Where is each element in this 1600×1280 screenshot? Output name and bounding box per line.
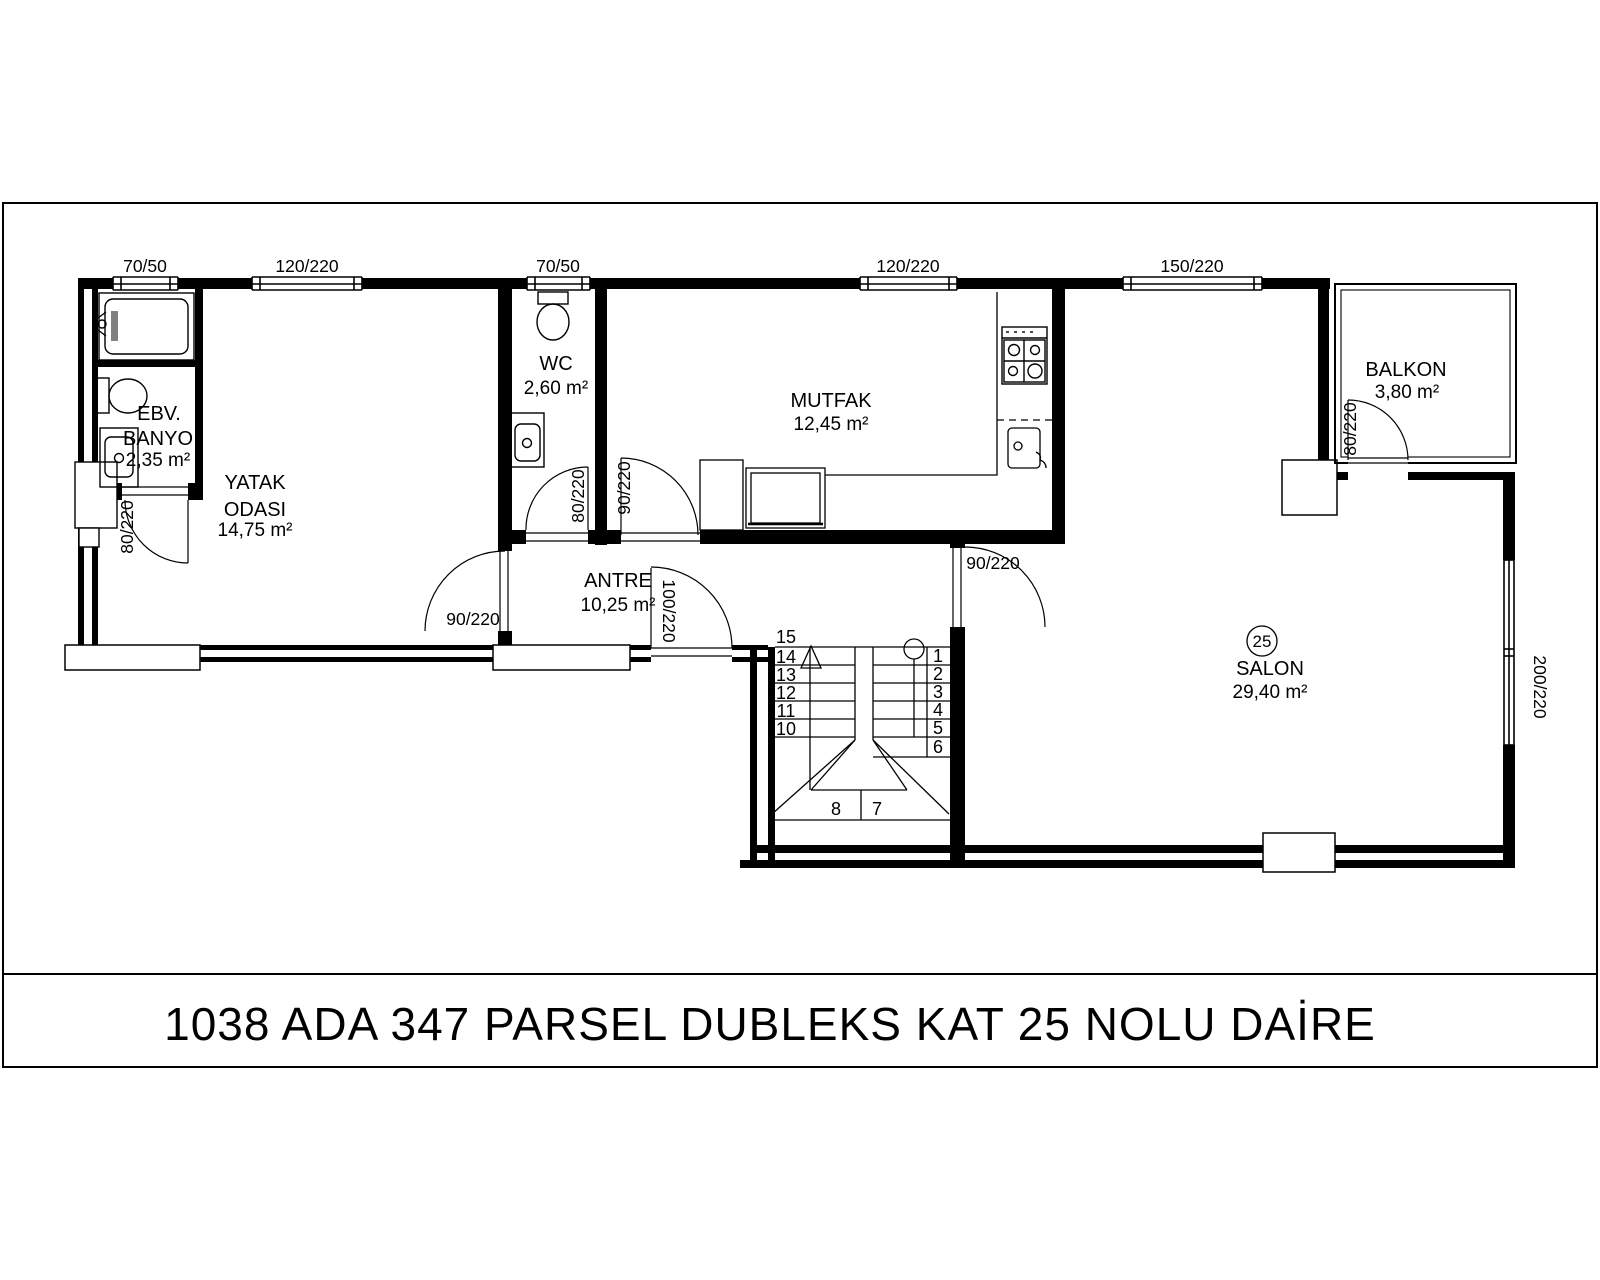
- step-number: 3: [933, 682, 943, 702]
- step-number: 13: [776, 665, 796, 685]
- shower-glass: [111, 311, 118, 341]
- step-number: 2: [933, 664, 943, 684]
- step-number: 6: [933, 737, 943, 757]
- door-dim-salon: 90/220: [966, 553, 1020, 573]
- room-area: 2,60 m²: [524, 378, 588, 399]
- room-label-balkon: BALKON 3,80 m²: [1365, 359, 1446, 403]
- kitchen-sink-icon: [1008, 428, 1046, 468]
- room-label-wc: WC 2,60 m²: [524, 353, 588, 399]
- window-dim-4: 120/220: [876, 256, 940, 276]
- window-symbol-70-50: [113, 275, 178, 292]
- room-label-antre: ANTRE 10,25 m²: [581, 570, 656, 616]
- floor-plan-sheet: 70/50 120/220 70/50 120/220 150/220 200/…: [0, 0, 1600, 1280]
- step-number: 1: [933, 646, 943, 666]
- window-dim-2: 120/220: [275, 256, 339, 276]
- room-name: ODASI: [224, 499, 286, 521]
- room-name: BALKON: [1365, 359, 1446, 381]
- window-dim-salon: 200/220: [1530, 655, 1550, 719]
- room-area: 2,35 m²: [126, 450, 190, 471]
- step-number: 12: [776, 683, 796, 703]
- door-dim-mutfak: 90/220: [614, 461, 634, 515]
- room-name: EBV.: [137, 403, 181, 425]
- window-symbol-120-220-kitchen: [860, 275, 957, 292]
- door-dim-wc: 80/220: [568, 469, 588, 523]
- step-number: 15: [776, 627, 796, 647]
- shower-tray: [98, 293, 194, 360]
- room-name: MUTFAK: [790, 390, 872, 412]
- kitchen-counter-edge: [825, 292, 997, 475]
- step-number: 4: [933, 700, 943, 720]
- stair-newel-circle: [904, 639, 924, 659]
- window-dim-5: 150/220: [1160, 256, 1224, 276]
- room-label-salon: 25 SALON 29,40 m²: [1233, 626, 1308, 703]
- stairs: [771, 639, 950, 820]
- room-name: BANYO: [123, 428, 193, 450]
- window-dim-1: 70/50: [123, 256, 167, 276]
- step-number: 5: [933, 718, 943, 738]
- sheet-border: [3, 203, 1597, 1067]
- window-symbol-200-220: [1504, 560, 1514, 745]
- room-name: YATAK: [224, 472, 286, 494]
- sheet-title: 1038 ADA 347 PARSEL DUBLEKS KAT 25 NOLU …: [164, 998, 1376, 1050]
- walls: [78, 278, 1515, 868]
- kitchen-fixtures: [700, 292, 1052, 530]
- floor-plan-drawing: 70/50 120/220 70/50 120/220 150/220 200/…: [0, 0, 1600, 1280]
- wc-sink-icon: [511, 413, 544, 467]
- window-symbol-120-220: [252, 275, 362, 292]
- step-number: 11: [777, 701, 796, 721]
- room-label-mutfak: MUTFAK 12,45 m²: [790, 390, 872, 435]
- fridge-icon: [700, 460, 743, 530]
- room-area: 12,45 m²: [794, 414, 869, 435]
- step-number: 10: [776, 719, 796, 739]
- wc-toilet-icon: [537, 292, 569, 340]
- step-number: 7: [872, 799, 882, 819]
- oven-icon: [746, 468, 825, 528]
- stove-icon: [1002, 327, 1047, 384]
- window-symbol-70-50-wc: [527, 275, 590, 292]
- room-area: 29,40 m²: [1233, 682, 1308, 703]
- room-label-yatak-odasi: YATAK ODASI 14,75 m²: [218, 472, 293, 541]
- step-number: 8: [831, 799, 841, 819]
- wall-shafts: [75, 462, 117, 547]
- room-area: 3,80 m²: [1375, 382, 1439, 403]
- room-label-ebv-banyo: EBV. BANYO 2,35 m²: [123, 403, 193, 471]
- faucet-icon: [1036, 452, 1046, 468]
- unit-number: 25: [1253, 632, 1272, 651]
- room-name: ANTRE: [584, 570, 652, 592]
- window-dim-3: 70/50: [536, 256, 580, 276]
- room-area: 10,25 m²: [581, 595, 656, 616]
- window-symbol-150-220: [1123, 275, 1262, 292]
- step-number: 14: [776, 647, 796, 667]
- door-dim-balkon: 80/220: [1340, 402, 1360, 456]
- room-name: WC: [539, 353, 572, 375]
- door-dim-banyo: 80/220: [117, 500, 137, 554]
- door-dim-yatak: 90/220: [446, 609, 500, 629]
- room-name: SALON: [1236, 658, 1304, 680]
- room-area: 14,75 m²: [218, 520, 293, 541]
- door-dim-entrance: 100/220: [659, 579, 679, 643]
